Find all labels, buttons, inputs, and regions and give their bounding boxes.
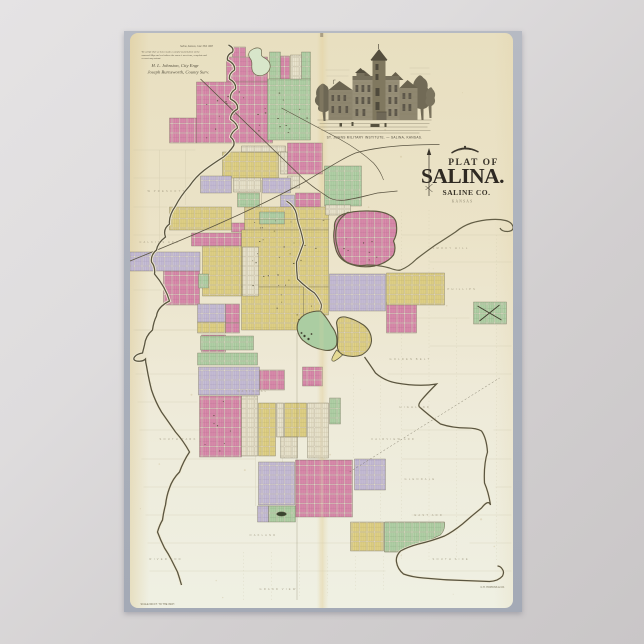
svg-text:C A L K I N S A D D: C A L K I N S A D D — [140, 240, 179, 244]
svg-text:SALINA.: SALINA. — [421, 164, 504, 188]
svg-text:S M O K Y H I L L: S M O K Y H I L L — [433, 246, 469, 250]
svg-text:P H I L L I P S: P H I L L I P S — [448, 287, 476, 291]
svg-text:F A I R V I E W A D D: F A I R V I E W A D D — [372, 437, 415, 441]
svg-text:E A S T A D D: E A S T A D D — [415, 513, 443, 517]
svg-text:S O U T H S I D E: S O U T H S I D E — [433, 557, 469, 561]
svg-text:C.H. HOPKINS & CO.: C.H. HOPKINS & CO. — [481, 586, 506, 589]
svg-text:R I V E R A D D: R I V E R A D D — [150, 557, 182, 561]
svg-text:KANSAS: KANSAS — [452, 200, 474, 204]
svg-text:Salina, Kansas, June 30th 1883: Salina, Kansas, June 30th 1883 — [180, 45, 214, 48]
svg-text:correct map extant.: correct map extant. — [142, 57, 162, 60]
svg-text:ST. JOHNS MILITARY INSTITUTE.: ST. JOHNS MILITARY INSTITUTE. — SALINA, … — [327, 136, 423, 140]
svg-text:S O U T H P A R K: S O U T H P A R K — [160, 437, 197, 441]
svg-text:G L E N D A L E: G L E N D A L E — [405, 477, 435, 481]
svg-text:H I G H L A N D: H I G H L A N D — [400, 405, 430, 409]
svg-text:G O L D E N B E L T: G O L D E N B E L T — [390, 357, 430, 361]
svg-text:SCALE 600 FT. TO THE INCH: SCALE 600 FT. TO THE INCH — [141, 603, 175, 606]
svg-text:SALINE CO.: SALINE CO. — [443, 188, 491, 197]
svg-text:O A K L A N D: O A K L A N D — [250, 533, 276, 537]
svg-text:G R A N D V I E W: G R A N D V I E W — [260, 587, 297, 591]
svg-text:W P R E S C O T T: W P R E S C O T T — [148, 189, 185, 193]
svg-text:N A T I O N A L: N A T I O N A L — [238, 389, 267, 393]
